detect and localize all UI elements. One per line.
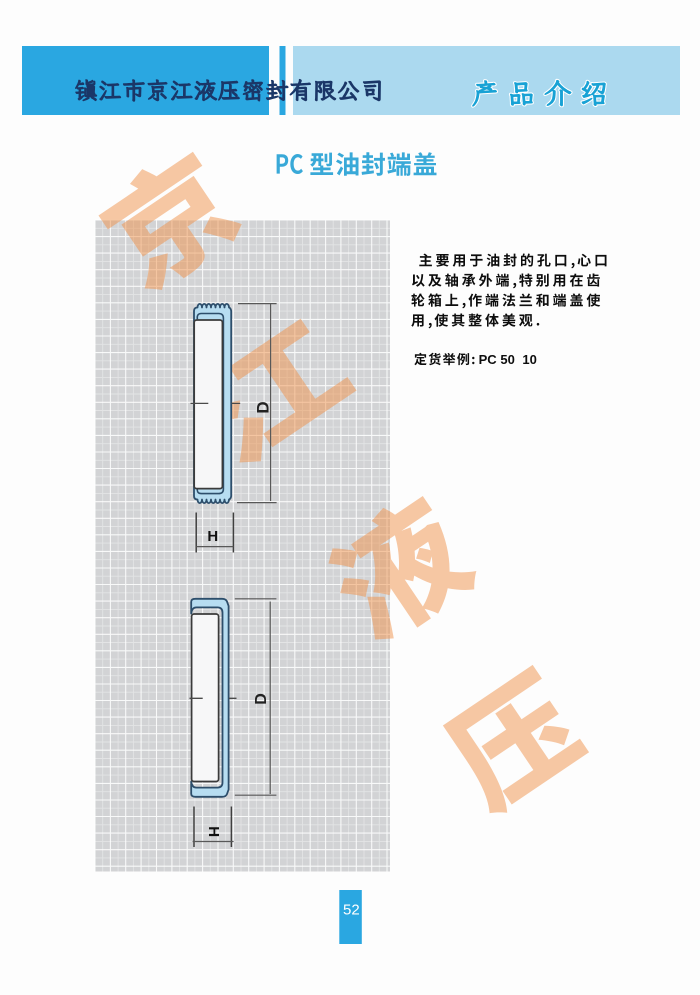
svg-text:52: 52	[343, 902, 360, 919]
svg-text:H: H	[207, 528, 218, 545]
svg-text:PC: PC	[479, 352, 498, 367]
svg-text:H: H	[205, 826, 222, 837]
svg-text:D: D	[253, 693, 270, 705]
svg-text:D: D	[253, 401, 272, 413]
svg-text:10: 10	[522, 352, 536, 367]
svg-text:50: 50	[500, 352, 514, 367]
